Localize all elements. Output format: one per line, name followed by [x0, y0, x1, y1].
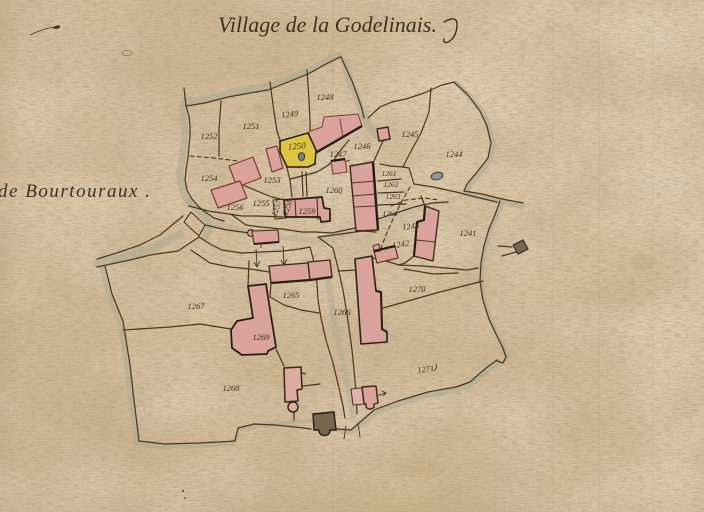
svg-text:1254: 1254 — [201, 173, 219, 183]
svg-text:1263: 1263 — [386, 192, 401, 201]
svg-text:1269: 1269 — [253, 332, 271, 342]
svg-text:1261: 1261 — [382, 169, 397, 178]
svg-text:1259: 1259 — [299, 206, 317, 216]
svg-text:1247: 1247 — [330, 149, 348, 159]
svg-text:Village de la Godelinais.: Village de la Godelinais. — [218, 12, 437, 37]
svg-text:1267: 1267 — [188, 301, 206, 311]
svg-text:1270: 1270 — [409, 284, 427, 294]
svg-text:1252: 1252 — [201, 131, 219, 141]
svg-text:1253: 1253 — [264, 175, 281, 185]
svg-text:1264: 1264 — [383, 209, 398, 218]
svg-text:1255: 1255 — [253, 198, 270, 208]
svg-text:1266: 1266 — [334, 307, 352, 317]
svg-text:1248: 1248 — [317, 92, 335, 102]
svg-text:1246: 1246 — [354, 141, 372, 151]
svg-text:1265: 1265 — [283, 290, 300, 300]
svg-text:1251: 1251 — [243, 121, 260, 131]
svg-text:1241: 1241 — [460, 228, 477, 238]
svg-text:1244: 1244 — [446, 149, 464, 159]
svg-text:1256: 1256 — [227, 202, 245, 212]
svg-text:1260: 1260 — [326, 185, 344, 195]
svg-text:1245: 1245 — [402, 129, 419, 139]
svg-text:1268: 1268 — [223, 383, 241, 393]
svg-text:1262: 1262 — [384, 180, 399, 189]
svg-text:1250: 1250 — [287, 140, 306, 151]
